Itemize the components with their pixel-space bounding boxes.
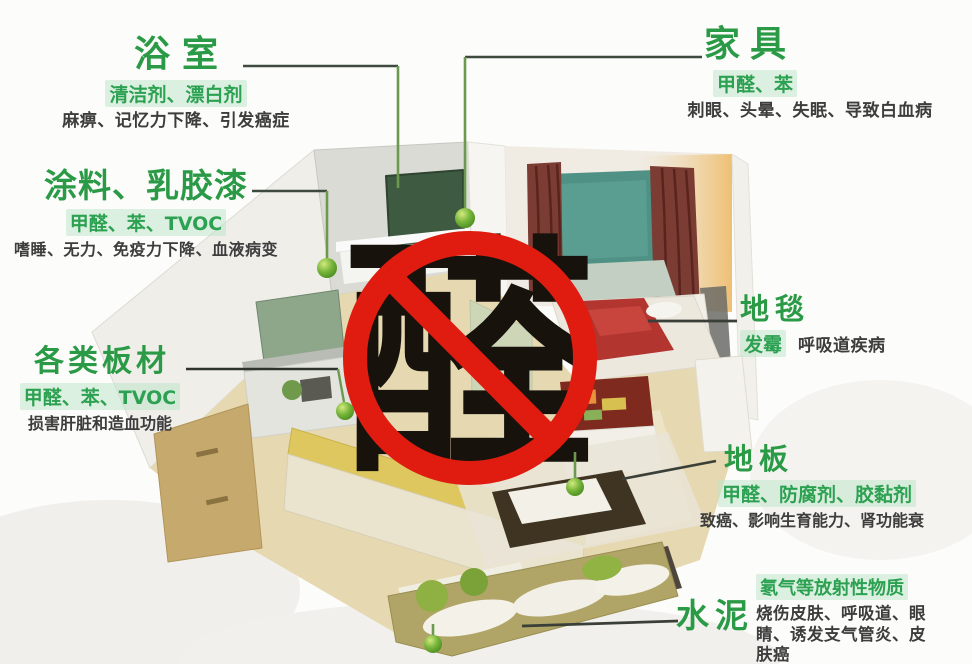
furniture-title: 家具 (652, 26, 838, 65)
carpet-sources: 发霉 (740, 330, 786, 357)
counter-plant (282, 380, 302, 400)
label-carpet: 地毯 发霉呼吸道疾病 (740, 294, 968, 358)
floor-effects: 致癌、影响生育能力、肾功能衰 (700, 511, 968, 531)
label-paint: 涂料、乳胶漆 甲醛、苯、TVOC 嗜睡、无力、免疫力下降、血液病变 (8, 168, 284, 260)
bathroom-title: 浴室 (30, 36, 322, 75)
label-bathroom: 浴室 清洁剂、漂白剂 麻痹、记忆力下降、引发癌症 (30, 36, 322, 132)
sofa-green-pillow-2 (460, 568, 488, 596)
cement-title: 水泥 (676, 598, 754, 634)
infographic-canvas: 醛 浴室 清洁剂、漂白剂 麻痹、记 (0, 0, 972, 664)
dot-paint (317, 258, 337, 278)
furniture-effects: 刺眼、头晕、失眠、导致白血病 (652, 101, 968, 122)
prohibition-sign: 醛 (342, 216, 594, 509)
dot-boards (336, 402, 354, 420)
label-cement: 水泥 (676, 598, 754, 634)
paint-effects: 嗜睡、无力、免疫力下降、血液病变 (8, 240, 284, 260)
label-floor: 地板 甲醛、防腐剂、胶黏剂 致癌、影响生育能力、肾功能衰 (700, 444, 968, 531)
art-blob-2 (602, 397, 627, 410)
label-furniture: 家具 甲醛、苯 刺眼、头晕、失眠、导致白血病 (652, 26, 968, 122)
carpet-effects: 呼吸道疾病 (798, 336, 886, 357)
kitchen-appliance (300, 376, 332, 402)
sofa-green-pillow-1 (416, 580, 448, 612)
boards-sources: 甲醛、苯、TVOC (20, 383, 180, 410)
carpet-title: 地毯 (740, 294, 968, 325)
dot-furniture (455, 208, 475, 228)
bathroom-effects: 麻痹、记忆力下降、引发癌症 (30, 111, 322, 132)
dot-floor (566, 478, 584, 496)
cement-sources: 氡气等放射性物质 (756, 574, 908, 600)
bathroom-sources: 清洁剂、漂白剂 (105, 80, 246, 107)
paint-title: 涂料、乳胶漆 (8, 168, 284, 204)
cement-effects: 烧伤皮肤、呼吸道、眼睛、诱发支气管炎、皮肤癌 (756, 604, 926, 664)
floor-title: 地板 (724, 444, 968, 475)
label-boards: 各类板材 甲醛、苯、TVOC 损害肝脏和造血功能 (6, 346, 194, 434)
furniture-sources: 甲醛、苯 (713, 70, 797, 97)
floor-sources: 甲醛、防腐剂、胶黏剂 (718, 480, 916, 507)
dot-cement (424, 635, 442, 653)
boards-effects: 损害肝脏和造血功能 (6, 414, 194, 434)
paint-sources: 甲醛、苯、TVOC (66, 209, 226, 236)
wardrobe (695, 356, 752, 452)
label-cement-body: 氡气等放射性物质 烧伤皮肤、呼吸道、眼睛、诱发支气管炎、皮肤癌 (756, 574, 968, 664)
boards-title: 各类板材 (6, 346, 194, 378)
